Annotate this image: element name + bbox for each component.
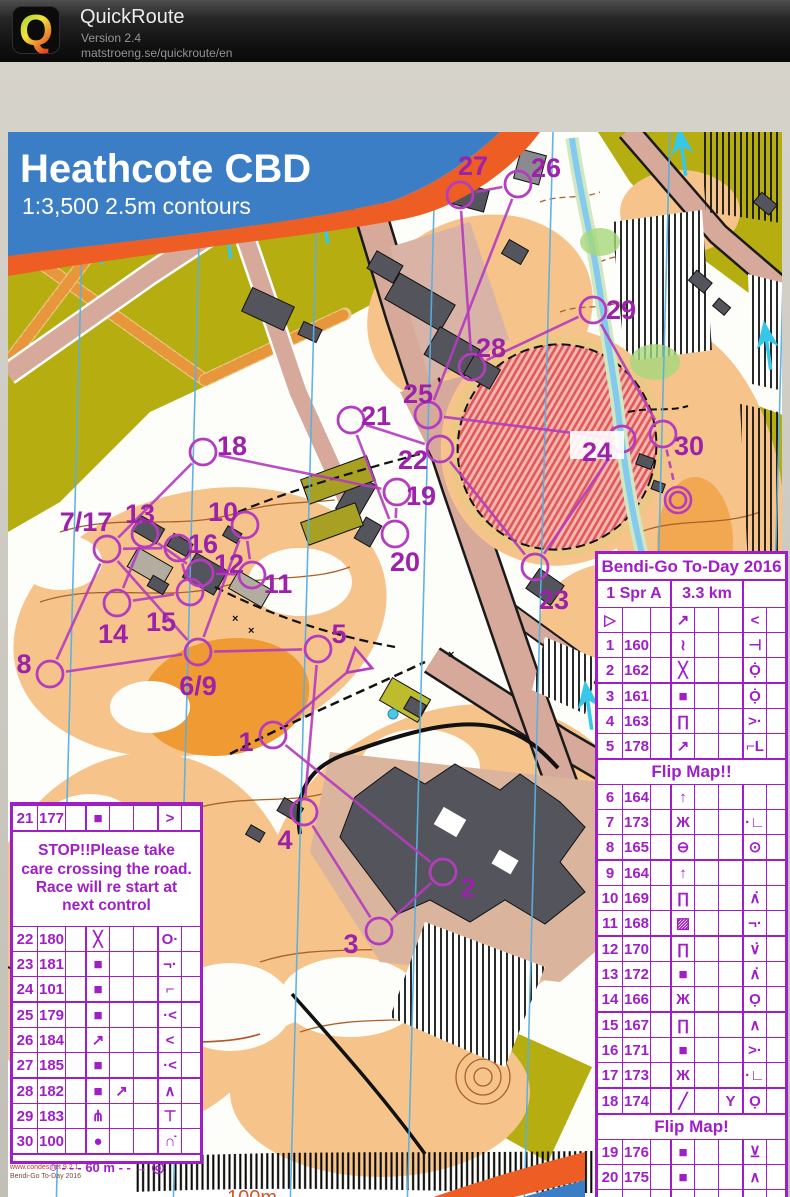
descriptor-symbol: ∏	[670, 709, 694, 733]
control-code: 161	[622, 684, 650, 708]
descriptor-symbol: ·∟	[742, 1063, 766, 1087]
descriptor-symbol: ¬·	[157, 952, 181, 976]
control-code: 183	[37, 1104, 65, 1128]
control-code: 184	[37, 1028, 65, 1052]
descriptor-symbol	[694, 608, 718, 632]
descriptor-symbol	[694, 1140, 718, 1164]
descriptor-row: 30100●∩̇	[13, 1128, 200, 1153]
descriptor-symbol	[109, 952, 133, 976]
control-descriptions-right: Bendi-Go To-Day 2016 1 Spr A 3.3 km ▷↗<1…	[595, 551, 788, 1197]
control-number: 13	[598, 962, 622, 986]
control-number: 14	[598, 987, 622, 1011]
flip-map-banner: Flip Map!!	[598, 758, 785, 784]
descriptor-symbol	[650, 987, 670, 1011]
app-title: QuickRoute	[80, 6, 185, 29]
descriptor-symbol	[766, 1013, 785, 1037]
descriptor-row: 1160≀⊣	[598, 632, 785, 657]
descriptor-symbol	[650, 684, 670, 708]
control-code: 176	[622, 1140, 650, 1164]
control-number-label: 28	[476, 333, 506, 363]
descriptor-symbol	[181, 806, 200, 830]
control-number-label: 10	[208, 497, 238, 527]
descriptor-symbol	[109, 1028, 133, 1052]
descriptor-symbol: ∏	[670, 937, 694, 961]
control-number: 1	[598, 633, 622, 657]
control-number: 20	[598, 1165, 622, 1189]
descriptor-symbol	[181, 952, 200, 976]
descriptor-symbol	[650, 835, 670, 859]
descriptor-symbol	[65, 927, 85, 951]
descriptor-symbol	[181, 1053, 200, 1077]
descriptor-symbol	[766, 962, 785, 986]
descriptor-symbol	[133, 977, 157, 1001]
control-number: 30	[13, 1129, 37, 1153]
descriptor-symbol	[694, 835, 718, 859]
control-code: 173	[622, 810, 650, 834]
event-title: Bendi-Go To-Day 2016	[598, 554, 785, 581]
class-row: 1 Spr A 3.3 km	[598, 581, 785, 607]
descriptor-symbol	[650, 633, 670, 657]
descriptor-symbol: ■	[85, 952, 109, 976]
descriptor-symbol	[718, 1038, 742, 1062]
descriptor-symbol: Ọ̇	[742, 684, 766, 708]
control-number: 21	[13, 806, 37, 830]
descriptor-symbol	[718, 684, 742, 708]
descriptor-symbol	[650, 810, 670, 834]
control-code: 166	[622, 987, 650, 1011]
descriptor-symbol: ·<	[157, 1003, 181, 1027]
descriptor-symbol	[181, 927, 200, 951]
control-number-label: 15	[146, 607, 176, 637]
control-code: 163	[622, 709, 650, 733]
descriptor-symbol: ■	[670, 1190, 694, 1197]
descriptor-symbol	[766, 785, 785, 809]
descriptor-symbol: ≀	[670, 633, 694, 657]
descriptor-symbol	[65, 1053, 85, 1077]
control-code: 167	[622, 1013, 650, 1037]
control-number: 26	[13, 1028, 37, 1052]
descriptor-row: 18174╱YỌ	[598, 1087, 785, 1113]
flip-map-banner: Flip Map!	[598, 1113, 785, 1139]
descriptor-symbol	[766, 709, 785, 733]
control-code: 174	[622, 1089, 650, 1113]
control-number: 18	[598, 1089, 622, 1113]
descriptor-symbol	[694, 937, 718, 961]
control-code: 164	[622, 785, 650, 809]
descriptor-symbol: ⌐L	[742, 734, 766, 758]
descriptor-symbol	[694, 962, 718, 986]
descriptor-symbol	[694, 785, 718, 809]
descriptor-symbol	[694, 1165, 718, 1189]
descriptor-symbol	[718, 658, 742, 682]
descriptor-symbol	[65, 1079, 85, 1103]
descriptor-symbol	[694, 734, 718, 758]
descriptor-symbol	[718, 1190, 742, 1197]
descriptor-symbol: ∧	[742, 1165, 766, 1189]
map-title: Heathcote CBD	[20, 147, 311, 191]
control-number: 16	[598, 1038, 622, 1062]
descriptor-symbol	[766, 734, 785, 758]
control-code: 170	[622, 937, 650, 961]
descriptor-symbol	[766, 1165, 785, 1189]
control-number: 25	[13, 1003, 37, 1027]
stop-warning: STOP!!Please takecare crossing the road.…	[13, 830, 200, 926]
descriptor-symbol	[766, 1190, 785, 1197]
control-number-label: 7/17	[60, 507, 113, 537]
control-number: 12	[598, 937, 622, 961]
descriptor-symbol	[718, 886, 742, 910]
descriptor-symbol	[650, 1165, 670, 1189]
descriptor-symbol	[718, 734, 742, 758]
control-number-label: 24	[582, 437, 612, 467]
descriptor-symbol	[718, 1063, 742, 1087]
descriptor-symbol: ■	[670, 1038, 694, 1062]
svg-text:×: ×	[232, 613, 238, 625]
descriptor-symbol	[766, 608, 785, 632]
descriptor-symbol	[766, 987, 785, 1011]
descriptor-symbol	[133, 1053, 157, 1077]
control-number-label: 23	[539, 585, 569, 615]
descriptor-symbol: ↗	[670, 608, 694, 632]
control-code: 169	[622, 886, 650, 910]
control-code	[622, 608, 650, 632]
descriptor-symbol: ·<	[157, 1053, 181, 1077]
descriptor-symbol: ⌐	[157, 977, 181, 1001]
descriptor-symbol	[694, 861, 718, 885]
control-code: 180	[37, 927, 65, 951]
descriptor-row: 22180╳O·	[13, 926, 200, 951]
control-number: 3	[598, 684, 622, 708]
descriptor-symbol: >·	[742, 709, 766, 733]
control-code: 175	[622, 1165, 650, 1189]
descriptor-row: 13172■∧̇	[598, 961, 785, 986]
control-code: 168	[622, 911, 650, 935]
descriptor-symbol	[766, 633, 785, 657]
descriptor-symbol: Ọ	[742, 1089, 766, 1113]
descriptor-symbol	[694, 709, 718, 733]
descriptor-symbol	[718, 633, 742, 657]
descriptor-symbol: ∩̇	[157, 1129, 181, 1153]
descriptor-symbol: Ọ	[742, 987, 766, 1011]
descriptor-symbol: ∧̇	[742, 886, 766, 910]
control-code: 178	[622, 734, 650, 758]
descriptor-symbol: Ọ̇	[742, 658, 766, 682]
descriptor-symbol	[133, 952, 157, 976]
descriptor-row: 29183⋔⊤	[13, 1103, 200, 1128]
descriptor-row: 21177■>	[598, 1189, 785, 1197]
control-code: 171	[622, 1038, 650, 1062]
course-leg	[123, 548, 162, 549]
descriptor-symbol	[694, 987, 718, 1011]
descriptor-symbol: ↗	[670, 734, 694, 758]
descriptor-symbol	[109, 1053, 133, 1077]
control-number-label: 13	[125, 499, 155, 529]
control-number: 24	[13, 977, 37, 1001]
descriptor-symbol	[650, 1089, 670, 1113]
descriptor-symbol: ■	[670, 1165, 694, 1189]
descriptor-row: 2162╳Ọ̇	[598, 657, 785, 682]
descriptor-symbol	[718, 608, 742, 632]
descriptor-symbol	[650, 608, 670, 632]
svg-text:×: ×	[248, 625, 254, 637]
descriptor-symbol	[650, 1140, 670, 1164]
descriptor-row: 21177■>	[13, 805, 200, 830]
descriptor-row: 10169∏∧̇	[598, 885, 785, 910]
descriptor-symbol	[181, 1079, 200, 1103]
control-number: 27	[13, 1053, 37, 1077]
control-code: 100	[37, 1129, 65, 1153]
control-number: 15	[598, 1013, 622, 1037]
control-number: 10	[598, 886, 622, 910]
descriptor-symbol	[742, 861, 766, 885]
descriptor-row: 5178↗⌐L	[598, 733, 785, 758]
control-number: 11	[598, 911, 622, 935]
descriptor-symbol: ↗	[85, 1028, 109, 1052]
control-number: 9	[598, 861, 622, 885]
descriptor-row: 9164↑	[598, 859, 785, 885]
descriptor-symbol: ∏	[670, 886, 694, 910]
control-number: 23	[13, 952, 37, 976]
descriptor-symbol	[718, 987, 742, 1011]
control-number: 29	[13, 1104, 37, 1128]
descriptor-symbol	[766, 1140, 785, 1164]
stop-warning-line: care crossing the road.	[13, 861, 200, 879]
descriptor-symbol: ⊻	[742, 1140, 766, 1164]
descriptor-row: 6164↑	[598, 784, 785, 809]
descriptor-symbol: ■	[85, 806, 109, 830]
control-number-label: 16	[188, 529, 218, 559]
descriptor-symbol: <	[742, 608, 766, 632]
descriptor-symbol	[65, 1104, 85, 1128]
descriptor-symbol	[133, 1104, 157, 1128]
control-number: ▷	[598, 608, 622, 632]
descriptor-symbol	[65, 1129, 85, 1153]
control-number-label: 6/9	[179, 671, 217, 701]
descriptor-symbol: ■	[670, 1140, 694, 1164]
descriptor-symbol: ■	[85, 977, 109, 1001]
descriptor-symbol	[65, 952, 85, 976]
app-url: matstroeng.se/quickroute/en	[81, 46, 232, 60]
control-code: 160	[622, 633, 650, 657]
descriptor-symbol	[181, 1028, 200, 1052]
control-number: 28	[13, 1079, 37, 1103]
descriptor-symbol	[694, 1089, 718, 1113]
logo-letter: Q	[19, 6, 53, 54]
descriptor-symbol	[766, 810, 785, 834]
descriptor-symbol	[694, 1013, 718, 1037]
descriptor-symbol	[181, 1104, 200, 1128]
control-code: 179	[37, 1003, 65, 1027]
descriptor-row: 27185■·<	[13, 1052, 200, 1077]
descriptor-symbol: ⋔	[85, 1104, 109, 1128]
descriptor-symbol	[718, 835, 742, 859]
descriptor-symbol	[766, 886, 785, 910]
descriptor-symbol	[694, 886, 718, 910]
control-number: 4	[598, 709, 622, 733]
descriptor-symbol: ⊤	[157, 1104, 181, 1128]
descriptor-row: 24101■⌐	[13, 976, 200, 1001]
descriptor-symbol	[181, 1129, 200, 1153]
descriptor-symbol	[694, 1063, 718, 1087]
control-number-label: 26	[531, 153, 561, 183]
descriptor-symbol	[109, 1129, 133, 1153]
descriptor-symbol	[718, 810, 742, 834]
descriptor-symbol: >·	[742, 1038, 766, 1062]
control-number: 5	[598, 734, 622, 758]
descriptor-symbol	[766, 684, 785, 708]
descriptor-symbol: ■	[85, 1003, 109, 1027]
descriptor-symbol	[650, 734, 670, 758]
descriptor-symbol	[133, 927, 157, 951]
control-number: 22	[13, 927, 37, 951]
descriptor-symbol	[109, 806, 133, 830]
descriptor-symbol	[650, 861, 670, 885]
descriptor-symbol: O·	[157, 927, 181, 951]
descriptor-row: 17173Ж·∟	[598, 1062, 785, 1087]
descriptor-symbol	[109, 977, 133, 1001]
control-number-label: 20	[390, 547, 420, 577]
descriptor-symbol	[65, 1003, 85, 1027]
control-number-label: 8	[16, 649, 31, 679]
svg-text:100m: 100m	[227, 1187, 277, 1197]
descriptor-row: 12170∏∨̇	[598, 935, 785, 961]
control-code: 177	[37, 806, 65, 830]
map-subtitle: 1:3,500 2.5m contours	[22, 193, 251, 219]
descriptor-symbol	[181, 977, 200, 1001]
title-bar: Q QuickRoute Version 2.4 matstroeng.se/q…	[0, 0, 790, 62]
descriptor-symbol: ↑	[670, 785, 694, 809]
control-code: 181	[37, 952, 65, 976]
descriptor-symbol: ╳	[85, 927, 109, 951]
descriptor-symbol	[694, 684, 718, 708]
descriptor-row: 20175■∧	[598, 1164, 785, 1189]
control-code: 185	[37, 1053, 65, 1077]
descriptor-symbol	[650, 911, 670, 935]
control-number-label: 3	[343, 929, 358, 959]
descriptor-symbol: ●	[85, 1129, 109, 1153]
descriptor-symbol: ╳	[670, 658, 694, 682]
descriptor-symbol: ▨	[670, 911, 694, 935]
descriptor-symbol	[694, 1190, 718, 1197]
descriptor-symbol	[718, 1140, 742, 1164]
control-number-label: 22	[398, 445, 428, 475]
control-number: 7	[598, 810, 622, 834]
control-number-label: 25	[403, 379, 433, 409]
descriptor-symbol	[694, 911, 718, 935]
descriptor-symbol	[694, 810, 718, 834]
descriptor-symbol: ■	[85, 1079, 109, 1103]
descriptor-symbol	[65, 806, 85, 830]
control-number-label: 27	[458, 151, 488, 181]
control-number: 8	[598, 835, 622, 859]
control-code: 162	[622, 658, 650, 682]
descriptor-row: 16171■>·	[598, 1037, 785, 1062]
stop-warning-line: STOP!!Please take	[13, 842, 200, 860]
descriptor-symbol	[718, 962, 742, 986]
descriptor-row: 19176■⊻	[598, 1139, 785, 1164]
control-code: 173	[622, 1063, 650, 1087]
descriptor-row: 7173Ж·∟	[598, 809, 785, 834]
app-version: Version 2.4	[81, 31, 141, 45]
descriptor-symbol	[109, 927, 133, 951]
window-frame: ××× Heathcote CBD 1:3,500 2.5m contours …	[0, 62, 790, 1197]
control-number: 21	[598, 1190, 622, 1197]
control-number-label: 12	[214, 549, 244, 579]
descriptor-symbol: ╱	[670, 1089, 694, 1113]
svg-text:×: ×	[448, 649, 454, 661]
control-number-label: 1	[238, 727, 253, 757]
descriptor-symbol: ∏	[670, 1013, 694, 1037]
descriptor-symbol	[718, 785, 742, 809]
control-number-label: 2	[460, 873, 475, 903]
descriptor-symbol	[718, 709, 742, 733]
descriptor-row: 3161■Ọ̇	[598, 682, 785, 708]
descriptor-symbol	[650, 937, 670, 961]
control-number-label: 30	[674, 431, 704, 461]
descriptor-symbol	[133, 1003, 157, 1027]
descriptor-symbol: ·∟	[742, 810, 766, 834]
control-number: 19	[598, 1140, 622, 1164]
descriptor-row: 8165⊖⊙	[598, 834, 785, 859]
descriptor-symbol: ■	[670, 684, 694, 708]
descriptor-symbol	[766, 1063, 785, 1087]
descriptor-row: 28182■↗∧	[13, 1077, 200, 1103]
control-number: 17	[598, 1063, 622, 1087]
descriptor-symbol: ↗	[109, 1079, 133, 1103]
descriptor-symbol	[766, 911, 785, 935]
descriptor-symbol: ¬·	[742, 911, 766, 935]
descriptor-symbol: ⊖	[670, 835, 694, 859]
descriptor-symbol	[718, 911, 742, 935]
descriptor-symbol: Ж	[670, 987, 694, 1011]
quickroute-logo-icon: Q	[12, 6, 60, 54]
descriptor-row: 4163∏>·	[598, 708, 785, 733]
descriptor-symbol: ⊙	[742, 835, 766, 859]
descriptor-symbol: Ж	[670, 810, 694, 834]
descriptor-symbol	[742, 785, 766, 809]
descriptor-symbol	[694, 1038, 718, 1062]
descriptor-row: 14166ЖỌ	[598, 986, 785, 1011]
descriptor-row: ▷↗<	[598, 607, 785, 632]
descriptor-symbol	[766, 1089, 785, 1113]
descriptor-symbol	[650, 709, 670, 733]
descriptor-symbol	[766, 658, 785, 682]
descriptor-symbol	[694, 633, 718, 657]
descriptor-symbol	[133, 806, 157, 830]
descriptor-row: 23181■¬·	[13, 951, 200, 976]
descriptor-symbol: ∧	[742, 1013, 766, 1037]
descriptor-symbol: ⊣	[742, 633, 766, 657]
control-number-label: 29	[606, 295, 636, 325]
descriptor-symbol	[650, 1063, 670, 1087]
control-number: 2	[598, 658, 622, 682]
descriptor-symbol	[718, 861, 742, 885]
descriptor-symbol: <	[157, 1028, 181, 1052]
descriptor-row: 25179■·<	[13, 1001, 200, 1027]
descriptor-symbol	[133, 1129, 157, 1153]
descriptor-symbol	[718, 937, 742, 961]
descriptor-symbol	[133, 1079, 157, 1103]
descriptor-symbol	[650, 1190, 670, 1197]
descriptor-symbol	[718, 1165, 742, 1189]
control-number-label: 11	[264, 569, 293, 599]
descriptor-symbol	[65, 1028, 85, 1052]
descriptor-symbol: ∧	[157, 1079, 181, 1103]
descriptor-symbol: >	[742, 1190, 766, 1197]
descriptor-symbol	[650, 1013, 670, 1037]
control-number-label: 19	[406, 481, 436, 511]
stop-warning-line: Race will re start at	[13, 879, 200, 897]
